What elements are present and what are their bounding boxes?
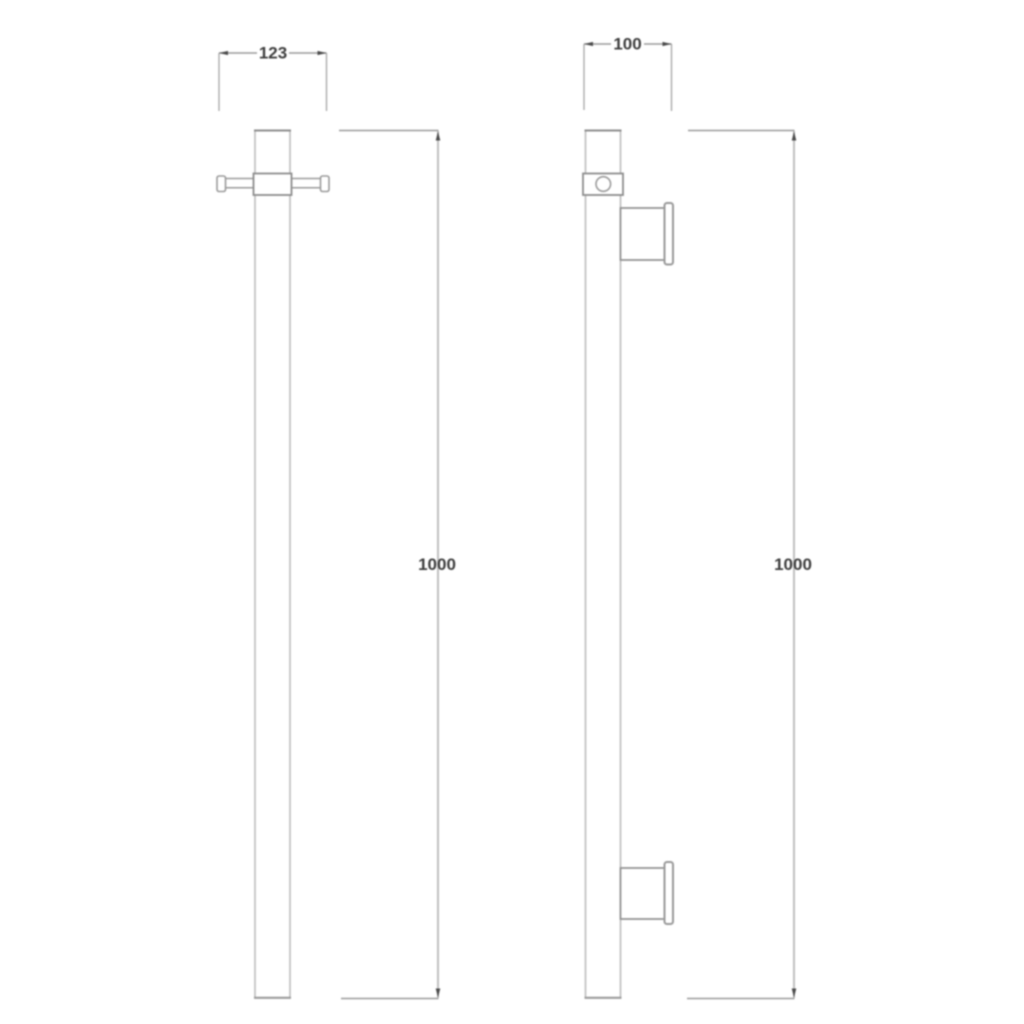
svg-text:123: 123 bbox=[259, 44, 287, 63]
svg-text:1000: 1000 bbox=[418, 555, 456, 574]
svg-text:100: 100 bbox=[613, 35, 641, 54]
svg-text:1000: 1000 bbox=[774, 555, 812, 574]
